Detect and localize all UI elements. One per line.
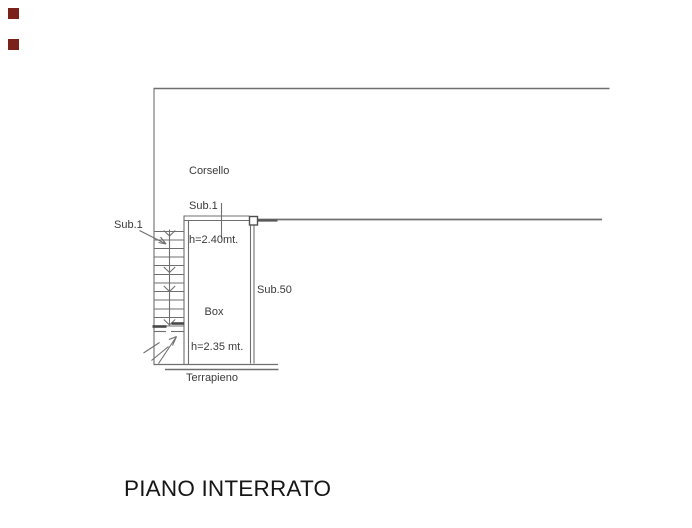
sub50-label: Sub.50 — [257, 285, 292, 297]
box-name: Box — [191, 307, 237, 319]
corsello-sub: Sub.1 — [189, 201, 238, 213]
corner-marker-bottom — [8, 39, 19, 50]
corsello-label: Corsello Sub.1 h=2.40mt. — [189, 143, 238, 270]
floor-plan-drawing — [0, 0, 692, 528]
box-label: Box h=2.35 mt. — [191, 284, 237, 376]
corsello-height: h=2.40mt. — [189, 235, 238, 247]
stair-fan-line — [159, 337, 177, 364]
stairs-sub-label: Sub.1 — [114, 220, 143, 232]
corner-marker-top — [8, 8, 19, 19]
box-height: h=2.35 mt. — [191, 342, 237, 354]
stair-fan-arrowhead-icon — [169, 337, 177, 346]
sub1-leader-line — [140, 231, 167, 245]
stair-fan-line — [144, 343, 160, 354]
floor-plan-canvas: Corsello Sub.1 h=2.40mt. Sub.1 Box h=2.3… — [0, 0, 692, 528]
corsello-name: Corsello — [189, 166, 238, 178]
plan-title: PIANO INTERRATO — [124, 477, 331, 501]
terrapieno-label: Terrapieno — [186, 373, 238, 385]
wall-pillar — [250, 217, 258, 226]
